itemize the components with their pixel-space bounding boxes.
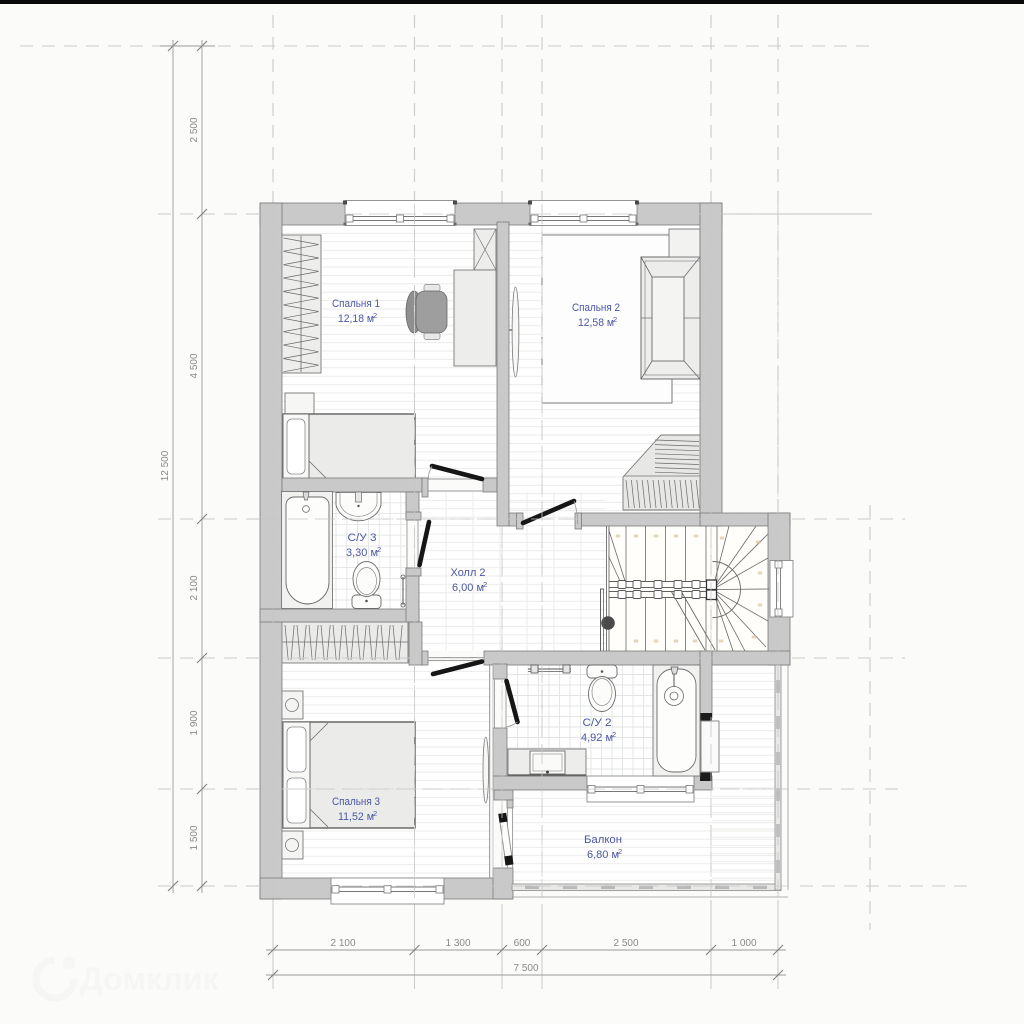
svg-text:4,92 м: 4,92 м [581,732,613,744]
svg-text:1 900: 1 900 [189,710,200,735]
svg-text:6,80 м: 6,80 м [587,849,619,861]
svg-text:6,00 м: 6,00 м [452,582,484,594]
svg-text:3,30 м: 3,30 м [346,547,378,559]
svg-text:С/У 2: С/У 2 [583,717,612,729]
svg-text:600: 600 [514,938,531,949]
svg-text:12,58 м: 12,58 м [578,317,614,329]
svg-text:1 000: 1 000 [731,938,756,949]
svg-text:12 500: 12 500 [160,450,171,481]
svg-text:2: 2 [613,315,617,324]
svg-text:С/У 3: С/У 3 [348,532,377,544]
svg-text:1 500: 1 500 [189,825,200,850]
svg-text:2 500: 2 500 [189,117,200,142]
svg-text:2 100: 2 100 [330,938,355,949]
svg-text:2: 2 [373,311,377,320]
svg-text:2: 2 [373,809,377,818]
svg-text:2: 2 [483,580,487,589]
svg-text:Спальня 3: Спальня 3 [332,796,380,808]
svg-text:11,52 м: 11,52 м [338,811,374,823]
svg-text:Спальня 1: Спальня 1 [332,298,380,310]
svg-text:2: 2 [612,730,616,739]
svg-text:Балкон: Балкон [584,834,622,846]
svg-text:4 500: 4 500 [189,353,200,378]
svg-text:2: 2 [618,847,622,856]
svg-text:1 300: 1 300 [445,938,470,949]
svg-text:Холл 2: Холл 2 [451,567,486,579]
svg-text:Спальня 2: Спальня 2 [572,302,620,314]
svg-text:2 100: 2 100 [189,575,200,600]
svg-text:7 500: 7 500 [513,963,538,974]
svg-text:2: 2 [377,545,381,554]
svg-text:Домклик: Домклик [80,961,219,997]
svg-text:12,18 м: 12,18 м [338,313,374,325]
svg-text:2 500: 2 500 [613,938,638,949]
